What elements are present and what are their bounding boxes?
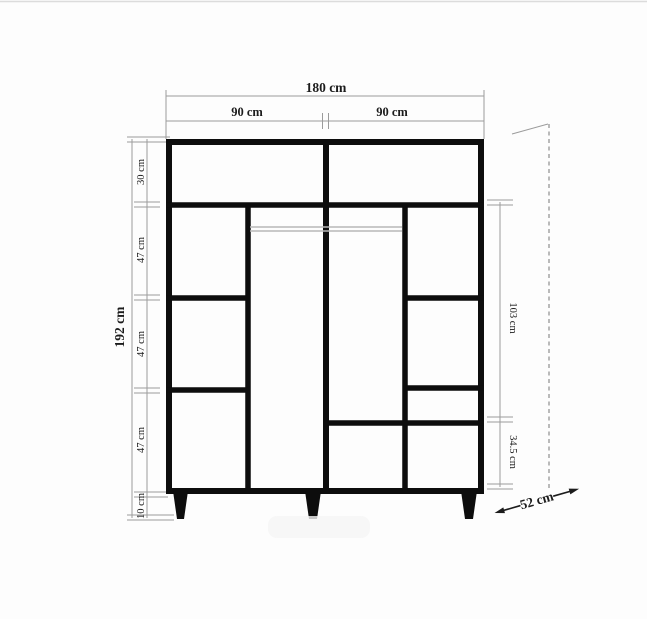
total-height-label: 192 cm [112, 306, 127, 348]
center-leg [305, 491, 321, 519]
left-leg [173, 491, 188, 519]
right-upper-span-label: 103 cm [507, 302, 518, 333]
depth-dim-group: 52 cm [492, 481, 581, 520]
shelf-height-1-label: 47 cm [136, 237, 147, 263]
right-half-width-label: 90 cm [376, 105, 408, 119]
depth-label: 52 cm [518, 488, 556, 512]
wardrobe-dimension-diagram: 52 cm 180 cm 90 cm 90 cm 192 cm 30 cm 47… [0, 0, 647, 619]
depth-arrow-left-icon [494, 507, 505, 516]
watermark [268, 516, 370, 538]
leg-height-label: 10 cm [136, 493, 147, 519]
right-lower-span-label: 34.5 cm [507, 435, 518, 469]
depth-arrow-right-icon [569, 486, 580, 495]
shelf-height-2-label: 47 cm [136, 331, 147, 357]
wardrobe-structure-group [166, 142, 484, 491]
depth-projection-top-edge [512, 124, 548, 134]
top-shelf-height-label: 30 cm [136, 159, 147, 185]
shelf-height-3-label: 47 cm [136, 427, 147, 453]
legs-group [173, 491, 477, 519]
right-leg [461, 491, 477, 519]
total-width-label: 180 cm [306, 80, 348, 95]
dimension-lines-group [127, 90, 513, 520]
diagram-canvas: 52 cm 180 cm 90 cm 90 cm 192 cm 30 cm 47… [0, 0, 647, 619]
left-half-width-label: 90 cm [231, 105, 263, 119]
